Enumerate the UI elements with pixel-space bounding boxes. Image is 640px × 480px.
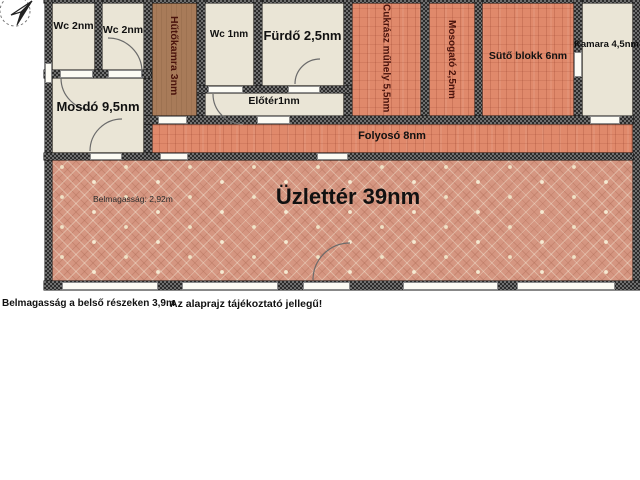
room-label-wc-c: Wc 1nm <box>204 30 254 41</box>
room-label-cukrasz: Cukrász műhely 5,5nm <box>351 2 421 114</box>
room-label-mosogato: Mosogató 2,5nm <box>428 2 475 117</box>
room-label-suto: Sütő blokk 6nm <box>482 51 574 62</box>
north-arrow-icon <box>0 0 46 42</box>
ceiling-note-uzletter: Belmagasság: 2,92m <box>93 194 173 204</box>
room-label-uzletter: Üzlettér 39nm <box>268 185 428 208</box>
room-label-kamara: Kamara 4,5nm <box>574 40 638 50</box>
room-label-wc-a: Wc 2nm <box>52 21 95 32</box>
door-swing-arcs <box>0 0 640 480</box>
room-label-hutokamra: Hűtőkamra 3nm <box>151 2 197 110</box>
caption-ceiling-height: Belmagasság a belső részeken 3,9m <box>2 298 175 309</box>
caption-disclaimer: Az alaprajz tájékoztató jellegű! <box>170 298 322 310</box>
floor-plan: Wc 2nm Wc 2nm Mosdó 9,5nm Hűtőkamra 3nm … <box>0 0 640 480</box>
room-label-wc-b: Wc 2nm <box>101 25 145 36</box>
room-label-folyoso: Folyosó 8nm <box>342 131 442 143</box>
room-label-eloter: Előtér1nm <box>204 96 344 107</box>
room-label-mosdo: Mosdó 9,5nm <box>52 100 144 114</box>
room-label-furdo: Fürdő 2,5nm <box>258 29 347 43</box>
